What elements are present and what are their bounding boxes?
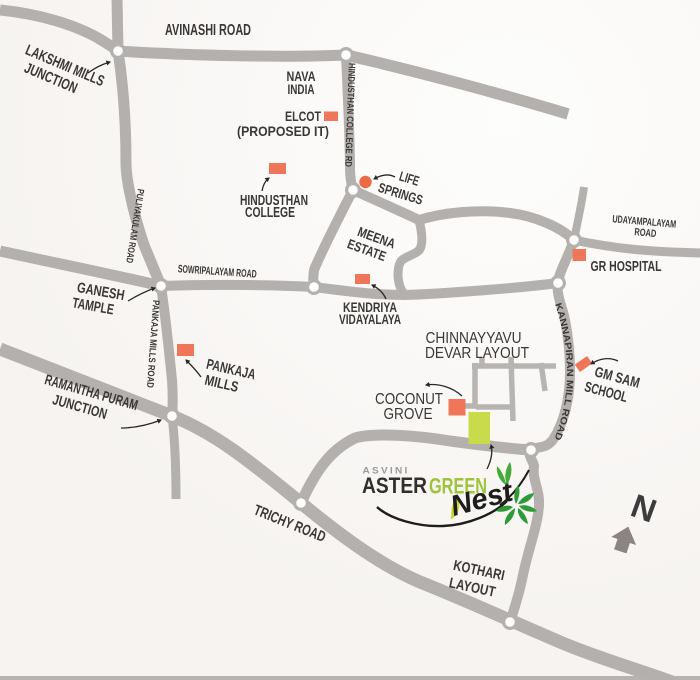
svg-text:GROVE: GROVE <box>384 406 433 423</box>
svg-text:AVINASHI ROAD: AVINASHI ROAD <box>165 22 251 39</box>
svg-text:COLLEGE: COLLEGE <box>245 205 295 221</box>
svg-text:ELCOT: ELCOT <box>285 108 321 124</box>
svg-text:(PROPOSED IT): (PROPOSED IT) <box>237 123 329 139</box>
svg-text:ASTER: ASTER <box>362 473 427 498</box>
svg-text:VIDAYALAYA: VIDAYALAYA <box>339 311 401 327</box>
svg-text:INDIA: INDIA <box>288 82 315 97</box>
svg-text:DEVAR LAYOUT: DEVAR LAYOUT <box>425 345 529 362</box>
svg-text:ROAD: ROAD <box>634 226 657 240</box>
svg-text:GR HOSPITAL: GR HOSPITAL <box>591 259 662 275</box>
